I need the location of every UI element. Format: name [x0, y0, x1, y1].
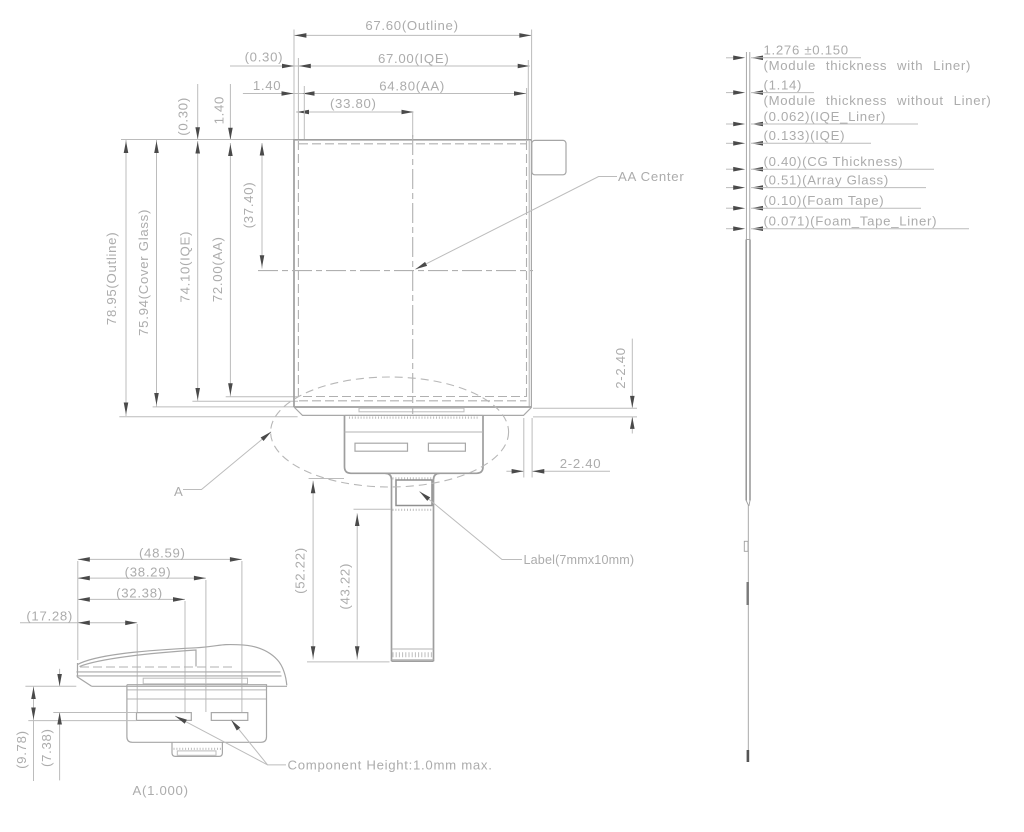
svg-text:(0.071)(Foam_Tape_Liner): (0.071)(Foam_Tape_Liner)	[764, 214, 938, 229]
svg-text:(37.40): (37.40)	[241, 182, 256, 229]
svg-text:A(1.000): A(1.000)	[133, 783, 189, 798]
svg-text:(38.29): (38.29)	[125, 565, 172, 580]
svg-text:(9.78): (9.78)	[14, 730, 29, 769]
svg-text:64.80(AA): 64.80(AA)	[379, 79, 445, 94]
svg-text:(48.59): (48.59)	[139, 546, 186, 561]
svg-text:67.60(Outline): 67.60(Outline)	[365, 18, 458, 33]
svg-text:78.95(Outline): 78.95(Outline)	[104, 232, 119, 325]
svg-text:67.00(IQE): 67.00(IQE)	[378, 51, 450, 66]
svg-text:(0.51)(Array Glass): (0.51)(Array Glass)	[764, 172, 889, 187]
svg-text:1.40: 1.40	[253, 78, 281, 93]
svg-text:(Module thickness with Line: (Module thickness with Liner)	[764, 58, 972, 73]
svg-text:(1.14): (1.14)	[764, 77, 803, 92]
svg-text:A: A	[174, 484, 184, 499]
svg-text:(0.10)(Foam Tape): (0.10)(Foam Tape)	[764, 193, 885, 208]
svg-text:(0.40)(CG Thickness): (0.40)(CG Thickness)	[764, 154, 904, 169]
svg-text:75.94(Cover Glass): 75.94(Cover Glass)	[136, 209, 151, 336]
svg-text:2-2.40: 2-2.40	[613, 347, 628, 389]
svg-text:(0.30): (0.30)	[176, 97, 191, 136]
svg-text:Component Height:1.0mm max.: Component Height:1.0mm max.	[288, 758, 493, 773]
svg-text:2-2.40: 2-2.40	[560, 456, 602, 471]
svg-text:(Module thickness without L: (Module thickness without Liner)	[764, 93, 992, 108]
svg-text:AA Center: AA Center	[618, 169, 684, 184]
svg-text:1.40: 1.40	[212, 96, 227, 124]
svg-text:Label(7mmx10mm): Label(7mmx10mm)	[524, 553, 635, 567]
svg-text:(0.30): (0.30)	[245, 50, 284, 65]
svg-text:72.00(AA): 72.00(AA)	[210, 236, 225, 302]
svg-text:(7.38): (7.38)	[39, 728, 54, 767]
svg-text:(0.133)(IQE): (0.133)(IQE)	[764, 128, 846, 143]
svg-text:74.10(IQE): 74.10(IQE)	[178, 231, 193, 303]
svg-text:(17.28): (17.28)	[26, 609, 73, 624]
svg-text:(33.80): (33.80)	[330, 96, 377, 111]
svg-text:(52.22): (52.22)	[292, 547, 307, 594]
svg-text:(0.062)(IQE_Liner): (0.062)(IQE_Liner)	[764, 109, 887, 124]
svg-text:(32.38): (32.38)	[116, 586, 163, 601]
svg-text:1.276 ±0.150: 1.276 ±0.150	[764, 43, 849, 58]
svg-text:(43.22): (43.22)	[338, 563, 353, 610]
